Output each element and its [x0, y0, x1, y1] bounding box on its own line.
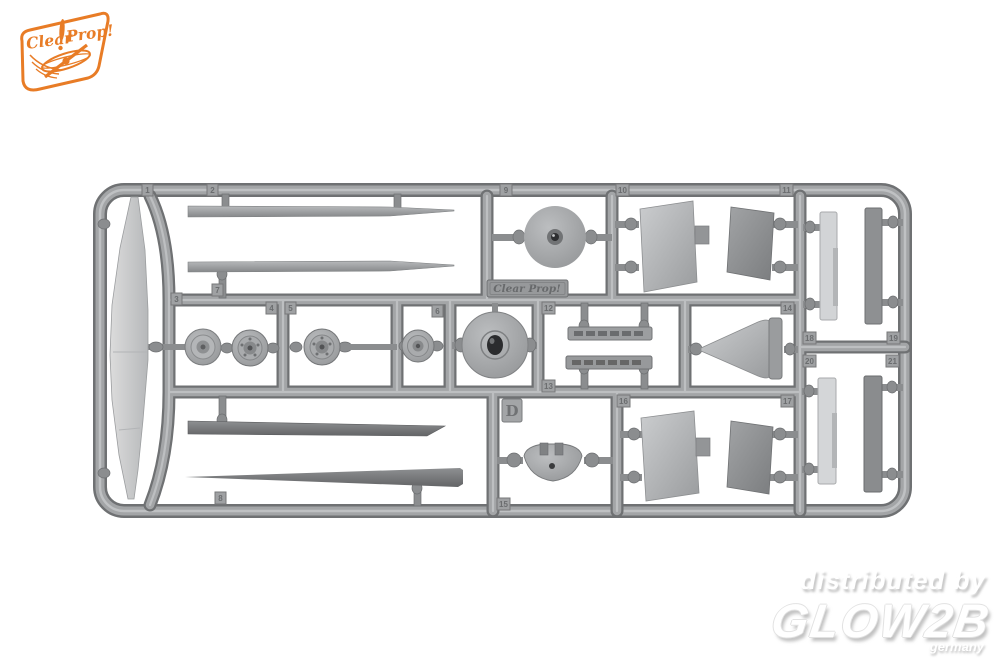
hatch-panel-part-1	[640, 201, 697, 292]
svg-text:12: 12	[544, 304, 553, 313]
svg-text:11: 11	[782, 186, 791, 195]
part-number-tag: 13	[542, 380, 555, 392]
hub-disc-part	[524, 206, 586, 268]
svg-text:18: 18	[805, 334, 814, 343]
spinner-disc-part	[462, 312, 528, 378]
svg-text:3: 3	[174, 295, 179, 304]
runner-letter: D	[505, 402, 518, 420]
narrow-strip-part-4	[864, 376, 882, 492]
hatch-panel-tab-2	[696, 438, 710, 456]
part-number-tag: 3	[171, 293, 182, 305]
part-number-tag: 16	[617, 395, 630, 407]
wheel-part-2	[232, 330, 268, 366]
wheel-part-1	[185, 329, 221, 365]
tail-cone-part	[701, 318, 782, 379]
hatch-panel-part-4	[727, 421, 773, 494]
svg-text:15: 15	[499, 500, 508, 509]
hatch-panel-tab-1	[695, 226, 709, 244]
narrow-strip-part-2	[865, 208, 882, 324]
svg-text:9: 9	[504, 186, 509, 195]
svg-text:19: 19	[889, 334, 898, 343]
part-number-tag: 14	[781, 302, 794, 314]
part-number-tag: 1	[142, 184, 153, 196]
svg-text:2: 2	[210, 186, 215, 195]
tapered-rod-part-2	[188, 261, 454, 272]
part-number-tag: 21	[886, 355, 899, 367]
wheel-part-4	[402, 330, 434, 362]
hatch-panel-part-3	[641, 411, 699, 501]
part-number-tag: 12	[542, 302, 555, 314]
runner-letter-plate: D	[502, 399, 522, 422]
hatch-panel-part-2	[727, 207, 774, 280]
svg-text:21: 21	[888, 357, 897, 366]
svg-text:5: 5	[288, 304, 293, 313]
svg-text:6: 6	[435, 307, 440, 316]
exhaust-strip-part-2	[566, 356, 652, 369]
narrow-strip-ridge-1	[833, 248, 838, 306]
part-number-tag: 10	[616, 184, 629, 196]
nameplate-text: Clear Prop!	[493, 283, 561, 295]
part-number-tag: 6	[432, 305, 443, 317]
svg-text:10: 10	[618, 186, 627, 195]
part-number-tag: 19	[887, 332, 900, 344]
cowling-piece-part	[524, 443, 582, 481]
tapered-rod-part-1	[188, 206, 454, 217]
wheel-part-3	[304, 329, 340, 365]
part-number-tag: 2	[207, 184, 218, 196]
watermark-brand: GLOW2B	[768, 597, 993, 644]
exhaust-strip-part-1	[568, 327, 652, 340]
part-number-tag: 17	[781, 395, 794, 407]
svg-text:17: 17	[783, 397, 792, 406]
part-number-tag: 18	[803, 332, 816, 344]
part-number-tag: 5	[285, 302, 296, 314]
part-number-tag: 15	[497, 498, 510, 510]
part-number-tag: 7	[212, 284, 223, 296]
brand-nameplate: Clear Prop!	[487, 280, 568, 297]
product-photo: Clear Prop!	[0, 0, 1000, 667]
svg-text:20: 20	[805, 357, 814, 366]
float-blade-part	[110, 197, 148, 499]
distributor-watermark: distributed by GLOW2B germany	[772, 567, 990, 653]
tapered-rod-part-3	[188, 421, 445, 436]
tapered-rod-part-4	[185, 468, 463, 487]
part-number-tag: 9	[500, 184, 512, 196]
svg-text:8: 8	[218, 494, 223, 503]
svg-text:7: 7	[215, 286, 220, 295]
part-number-tag: 11	[780, 184, 793, 196]
part-number-tag: 4	[266, 302, 277, 314]
svg-text:16: 16	[619, 397, 628, 406]
watermark-line1: distributed by	[772, 567, 986, 593]
svg-text:1: 1	[145, 186, 150, 195]
part-number-tag: 8	[215, 492, 226, 504]
narrow-strip-ridge-2	[832, 413, 837, 468]
svg-text:13: 13	[544, 382, 553, 391]
svg-text:4: 4	[269, 304, 274, 313]
svg-text:14: 14	[783, 304, 792, 313]
part-number-tag: 20	[803, 355, 816, 367]
